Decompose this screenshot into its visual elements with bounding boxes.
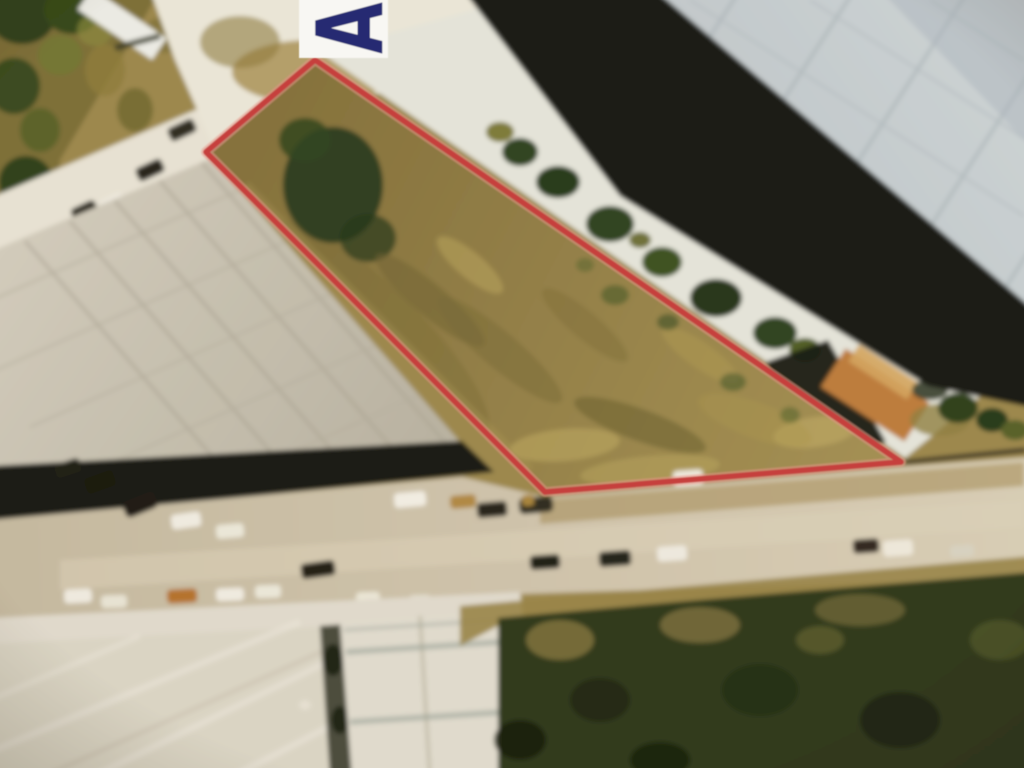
photo-scene <box>0 0 1024 768</box>
marker-label: A <box>297 0 404 58</box>
aerial-photo-figure: A <box>0 0 1024 768</box>
vignette <box>0 0 1024 768</box>
marker-label-text: A <box>297 2 404 54</box>
aerial-photo: A <box>0 0 1024 768</box>
